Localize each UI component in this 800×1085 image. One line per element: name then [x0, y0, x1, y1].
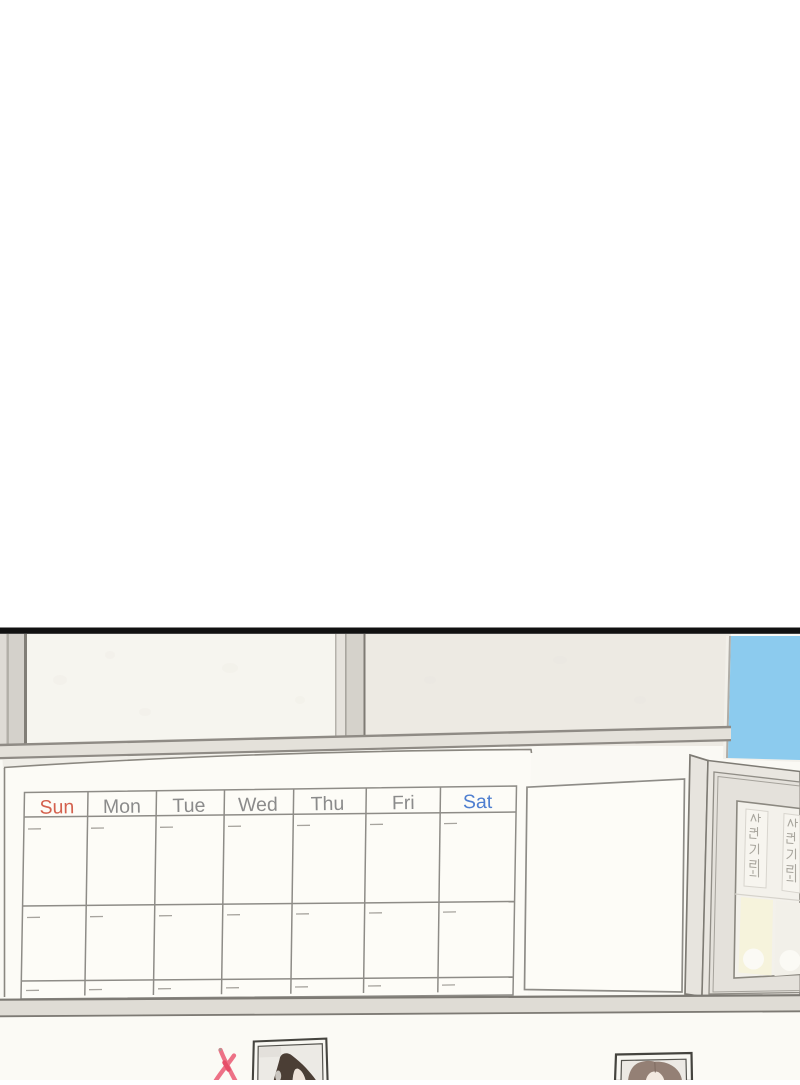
- svg-text:Sun: Sun: [39, 796, 74, 818]
- svg-text:Wed: Wed: [238, 794, 278, 817]
- svg-text:Thu: Thu: [310, 793, 344, 815]
- svg-text:Tue: Tue: [172, 795, 205, 817]
- svg-text:Mon: Mon: [103, 796, 141, 819]
- svg-text:Sat: Sat: [463, 791, 493, 813]
- svg-text:Fri: Fri: [392, 792, 415, 814]
